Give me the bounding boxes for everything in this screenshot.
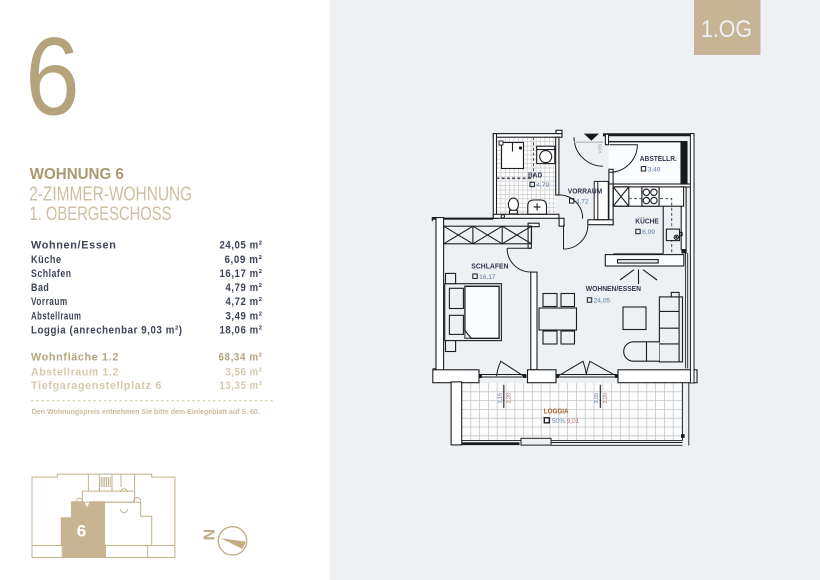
svg-text:4,79 m²: 4,79 m² xyxy=(226,282,263,294)
svg-text:KÜCHE: KÜCHE xyxy=(635,216,659,225)
svg-text:Den Wohnungspreis entnehmen Si: Den Wohnungspreis entnehmen Sie bitte de… xyxy=(32,407,260,416)
svg-text:4,72 m²: 4,72 m² xyxy=(226,296,263,308)
svg-text:WOHNEN/ESSEN: WOHNEN/ESSEN xyxy=(586,284,641,293)
svg-text:Loggia (anrechenbar 9,03 m²): Loggia (anrechenbar 9,03 m²) xyxy=(31,324,183,336)
svg-text:6: 6 xyxy=(77,522,86,541)
svg-text:24,05: 24,05 xyxy=(594,298,611,305)
svg-text:9,01: 9,01 xyxy=(567,418,580,425)
svg-text:1. OBERGESCHOSS: 1. OBERGESCHOSS xyxy=(30,204,172,225)
svg-text:6,09 m²: 6,09 m² xyxy=(225,254,263,266)
svg-text:1,16: 1,16 xyxy=(498,393,504,404)
svg-text:68,34 m²: 68,34 m² xyxy=(219,351,263,363)
svg-text:6,09: 6,09 xyxy=(642,229,655,236)
svg-text:Wohnfläche 1.2: Wohnfläche 1.2 xyxy=(31,351,119,363)
svg-text:6: 6 xyxy=(25,16,79,139)
svg-text:LOGGIA: LOGGIA xyxy=(544,406,569,415)
svg-text:24,05 m²: 24,05 m² xyxy=(220,240,263,252)
svg-text:1.OG: 1.OG xyxy=(701,16,752,43)
svg-text:Küche: Küche xyxy=(31,254,62,266)
svg-text:2,20: 2,20 xyxy=(603,393,609,404)
svg-text:BAD: BAD xyxy=(528,170,543,179)
svg-text:4,79: 4,79 xyxy=(536,182,549,189)
svg-text:3,56 m²: 3,56 m² xyxy=(226,366,263,378)
svg-text:VORRAUM: VORRAUM xyxy=(568,186,602,195)
svg-text:50%: 50% xyxy=(552,418,565,425)
svg-text:3,49 m²: 3,49 m² xyxy=(226,310,263,322)
svg-text:2,20: 2,20 xyxy=(507,393,513,404)
svg-text:Schlafen: Schlafen xyxy=(31,268,72,280)
svg-text:3,05: 3,05 xyxy=(594,393,600,404)
svg-text:Abstellraum: Abstellraum xyxy=(31,310,81,322)
svg-text:SCHLAFEN: SCHLAFEN xyxy=(471,261,508,270)
svg-text:VOS: VOS xyxy=(598,144,603,154)
svg-text:WOHNUNG 6: WOHNUNG 6 xyxy=(30,166,124,183)
svg-text:Wohnen/Essen: Wohnen/Essen xyxy=(31,240,117,252)
svg-text:2-ZIMMER-WOHNUNG: 2-ZIMMER-WOHNUNG xyxy=(29,182,192,205)
svg-text:4,72: 4,72 xyxy=(576,199,589,206)
svg-text:Vorraum: Vorraum xyxy=(31,296,68,308)
svg-text:16,17: 16,17 xyxy=(479,274,496,281)
svg-text:Tiefgaragenstellplatz 6: Tiefgaragenstellplatz 6 xyxy=(31,380,162,392)
svg-text:Bad: Bad xyxy=(31,282,49,294)
svg-text:N: N xyxy=(199,529,216,541)
svg-text:ABSTELLR.: ABSTELLR. xyxy=(640,154,677,163)
svg-text:13,35 m²: 13,35 m² xyxy=(220,380,263,392)
svg-text:3,49: 3,49 xyxy=(648,167,661,174)
svg-text:18,06 m²: 18,06 m² xyxy=(220,324,263,336)
svg-text:16,17 m²: 16,17 m² xyxy=(220,268,263,280)
svg-text:Abstellraum 1.2: Abstellraum 1.2 xyxy=(31,366,119,378)
